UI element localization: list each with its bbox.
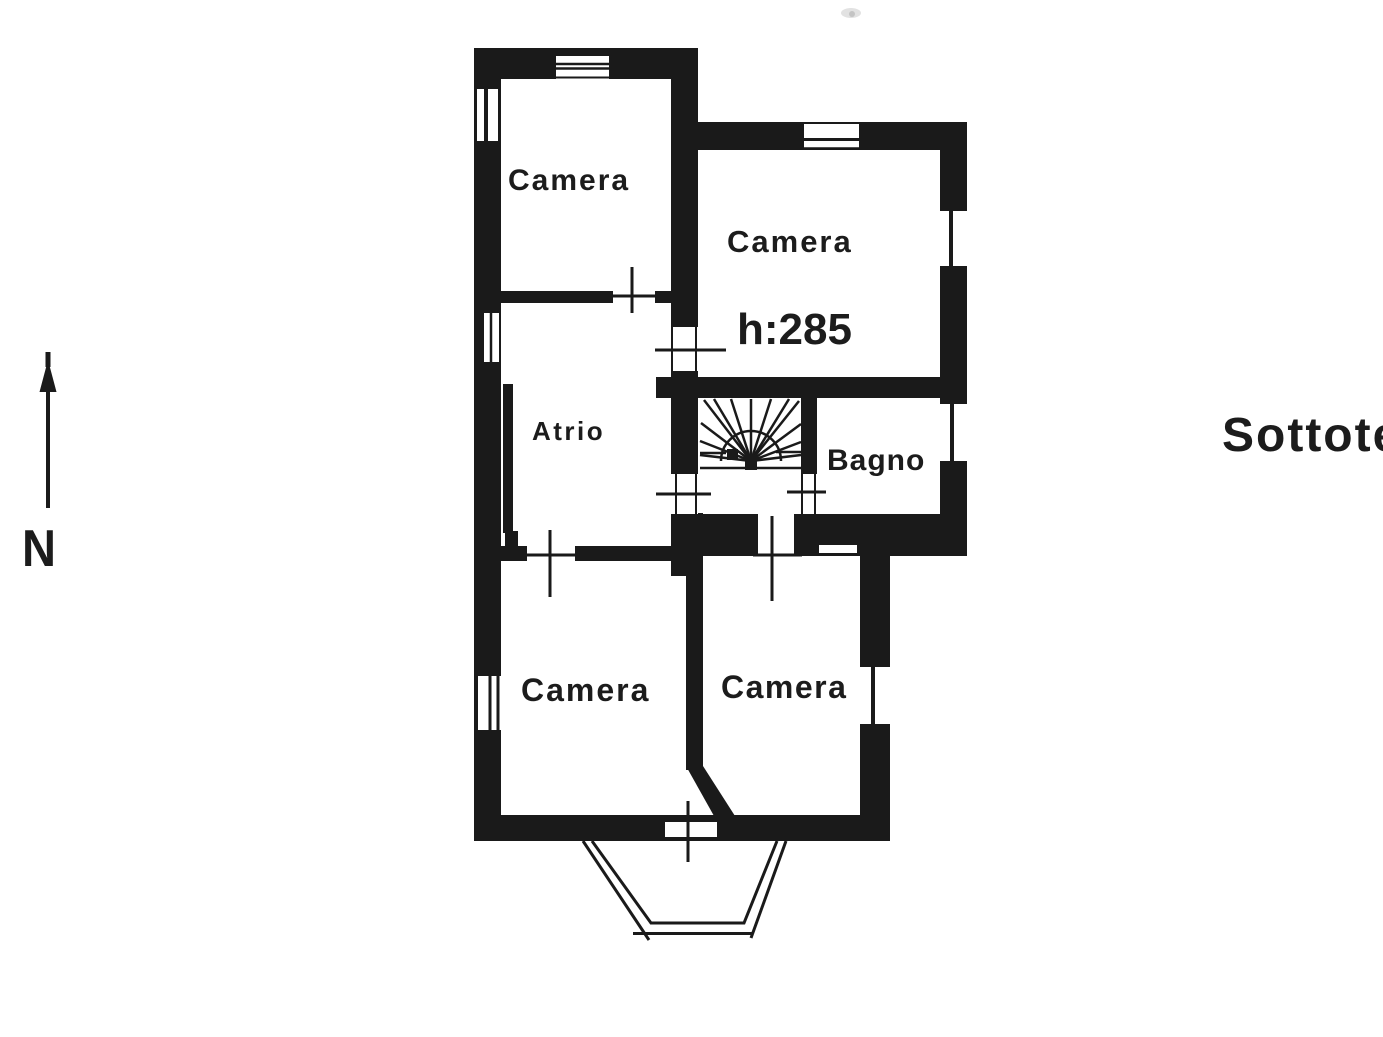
svg-text:N: N — [22, 520, 56, 578]
svg-text:Camera: Camera — [508, 164, 630, 197]
svg-text:Camera: Camera — [521, 672, 650, 708]
svg-text:Bagno: Bagno — [827, 444, 925, 477]
svg-text:h:285: h:285 — [737, 305, 852, 354]
svg-text:Atrio: Atrio — [532, 416, 605, 446]
svg-text:Sottote: Sottote — [1222, 409, 1383, 462]
svg-text:Camera: Camera — [727, 224, 853, 259]
svg-text:Camera: Camera — [721, 669, 847, 705]
